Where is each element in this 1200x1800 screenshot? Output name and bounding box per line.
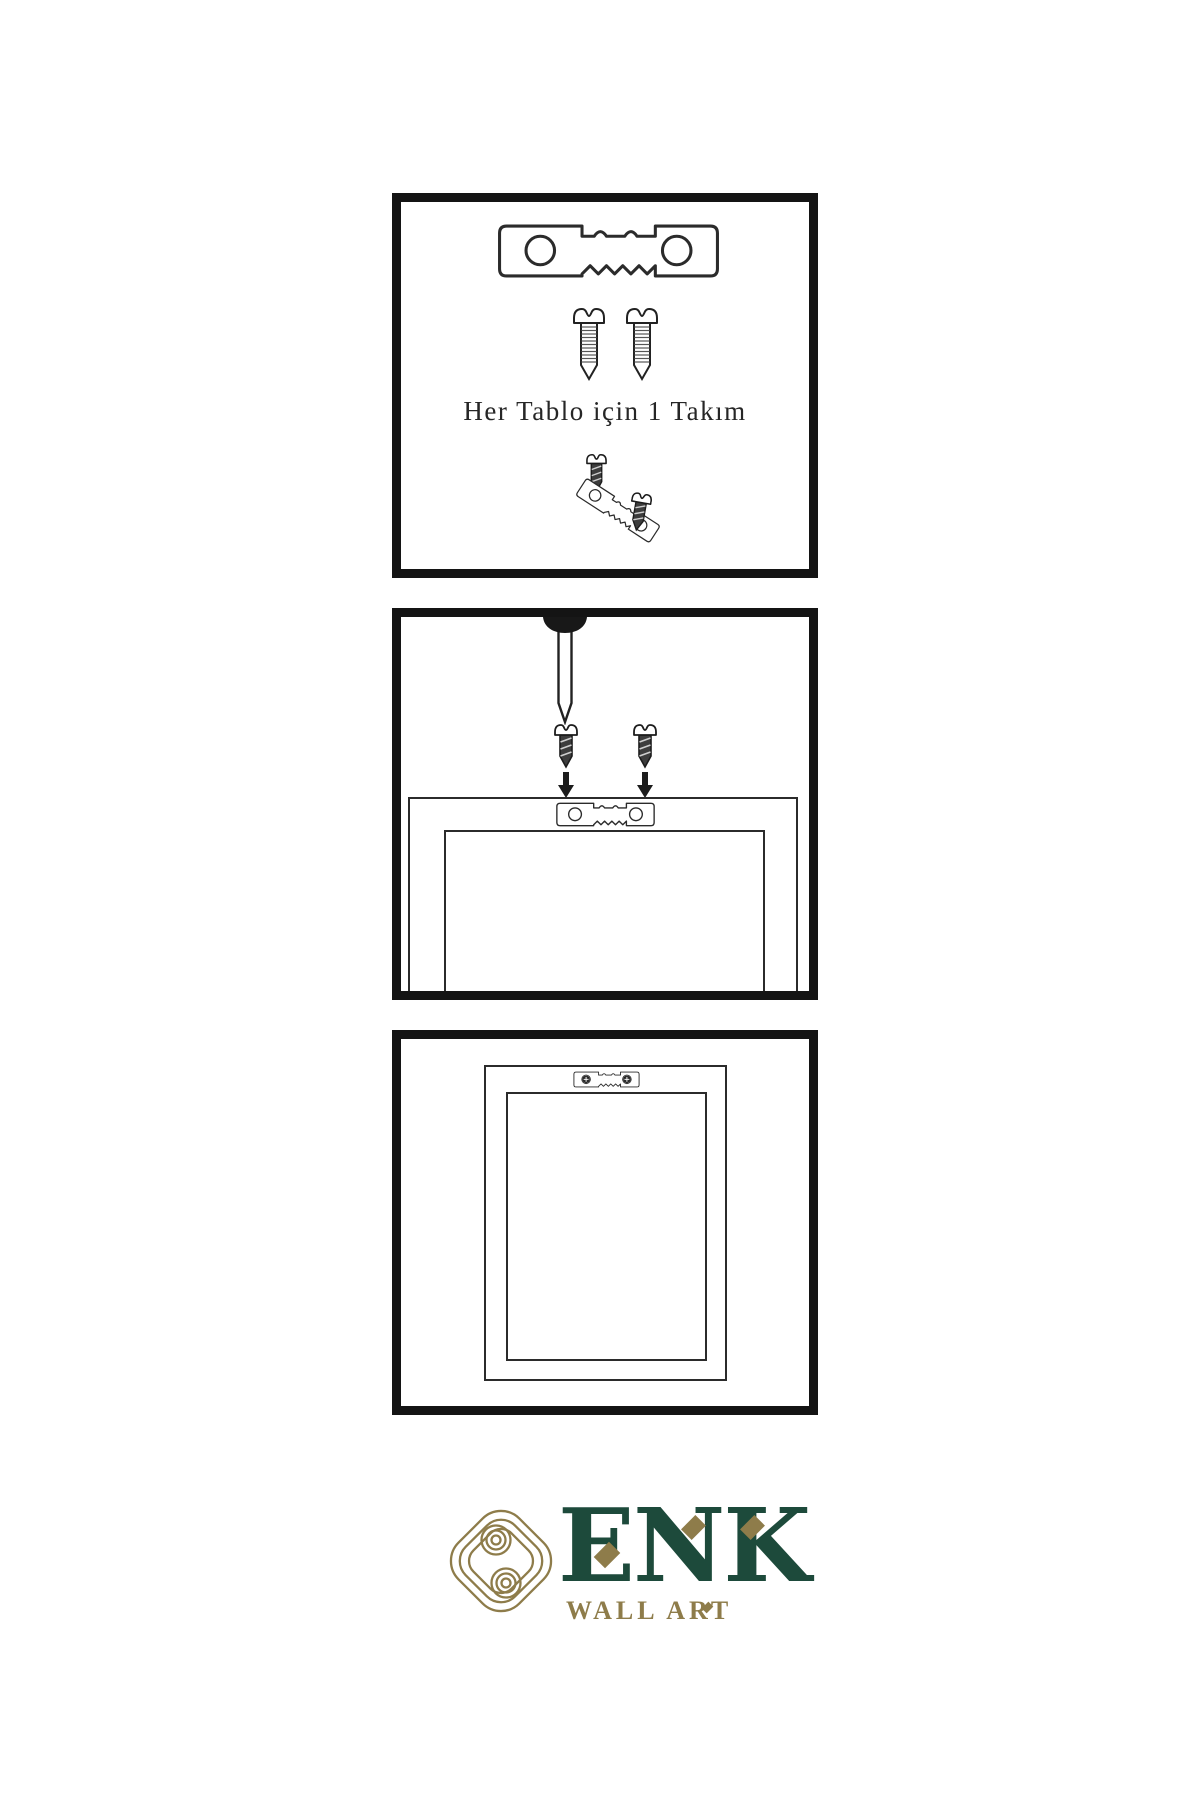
sawtooth-hanger-icon (495, 223, 722, 279)
brand-wordmark: ENK (558, 1496, 788, 1596)
kit-caption: Her Tablo için 1 Takım (401, 396, 809, 427)
frame-inner-outline (506, 1092, 707, 1361)
arrow-down-icon (637, 772, 653, 798)
wall-nail-icon (542, 617, 588, 725)
panel-hardware-kit: Her Tablo için 1 Takım (392, 193, 818, 578)
sawtooth-hanger-installed-icon (573, 1070, 640, 1089)
arrow-down-icon (558, 772, 574, 798)
dark-screw-icon (554, 723, 578, 769)
panel-wall-install (392, 608, 818, 1000)
panel-hung-frame (392, 1030, 818, 1415)
knot-logo-icon (440, 1500, 562, 1623)
instruction-sheet: Her Tablo için 1 Takım (0, 0, 1200, 1800)
screw-icon (572, 305, 606, 385)
dark-screw-icon (633, 723, 657, 769)
sawtooth-hanger-icon (553, 802, 658, 827)
screw-icon (625, 305, 659, 385)
frame-inner-outline (444, 830, 765, 1000)
